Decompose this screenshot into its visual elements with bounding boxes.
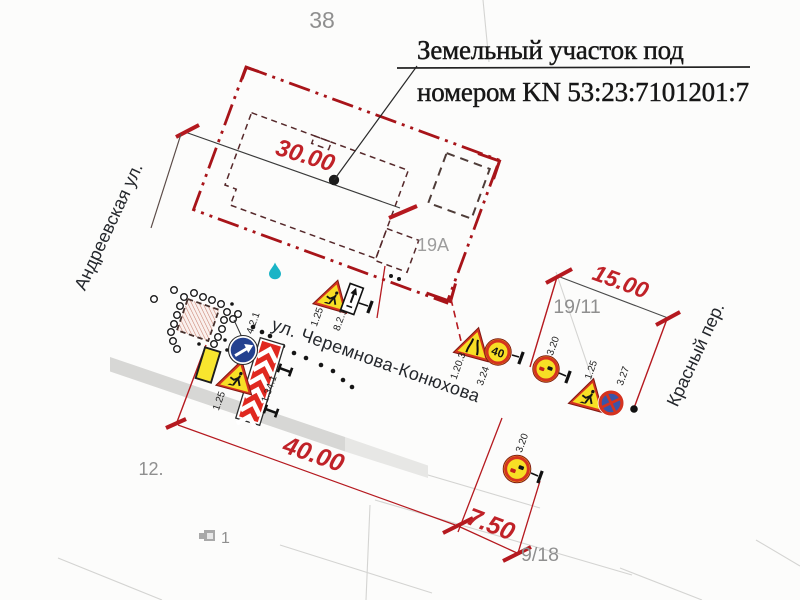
svg-text:12.: 12. xyxy=(138,459,163,479)
svg-text:9/18: 9/18 xyxy=(521,544,559,566)
svg-text:38: 38 xyxy=(309,7,335,33)
svg-text:номером KN 53:23:7101201:7: номером KN 53:23:7101201:7 xyxy=(417,77,749,107)
svg-text:1: 1 xyxy=(221,530,230,547)
svg-text:19А: 19А xyxy=(417,235,449,255)
svg-text:Земельный участок под: Земельный участок под xyxy=(417,35,684,65)
svg-text:19/11: 19/11 xyxy=(553,296,600,318)
